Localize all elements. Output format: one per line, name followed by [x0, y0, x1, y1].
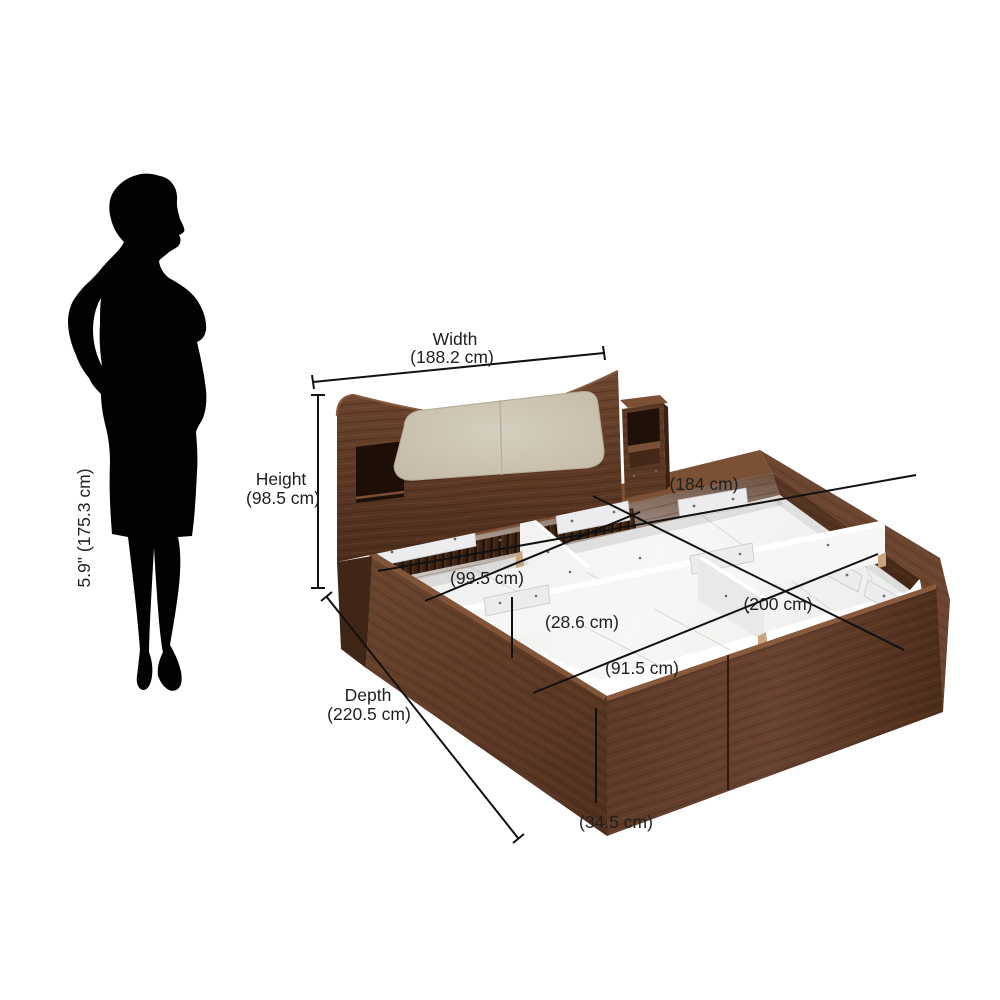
scale-figure: 5.9" (175.3 cm)	[68, 174, 206, 691]
woman-silhouette	[68, 174, 206, 691]
bed-illustration: Width (188.2 cm) Height (98.5 cm) Depth …	[246, 329, 950, 843]
storage-height-value: (28.6 cm)	[545, 612, 619, 632]
width-dimension: Width (188.2 cm)	[312, 329, 605, 389]
depth-label: Depth	[345, 685, 392, 705]
width-value: (188.2 cm)	[410, 347, 494, 367]
person-height-label: 5.9" (175.3 cm)	[74, 468, 94, 587]
left-end-cap	[337, 556, 372, 668]
storage-depth-value: (91.5 cm)	[605, 658, 679, 678]
headboard-right-shelf	[620, 395, 670, 498]
storage-width-value: (99.5 cm)	[450, 568, 524, 588]
width-label: Width	[433, 329, 478, 349]
height-value: (98.5 cm)	[246, 488, 320, 508]
interior-width-value: (184 cm)	[669, 474, 738, 494]
diagram-canvas: 5.9" (175.3 cm)	[0, 0, 1000, 1000]
height-dimension: Height (98.5 cm)	[246, 395, 325, 588]
product-dimension-diagram: { "figure": { "type": "storage-bed-dimen…	[0, 0, 1000, 1000]
depth-value: (220.5 cm)	[327, 704, 411, 724]
headboard-cushion	[394, 392, 604, 481]
base-height-value: (34.5 cm)	[579, 812, 653, 832]
height-label: Height	[256, 469, 307, 489]
